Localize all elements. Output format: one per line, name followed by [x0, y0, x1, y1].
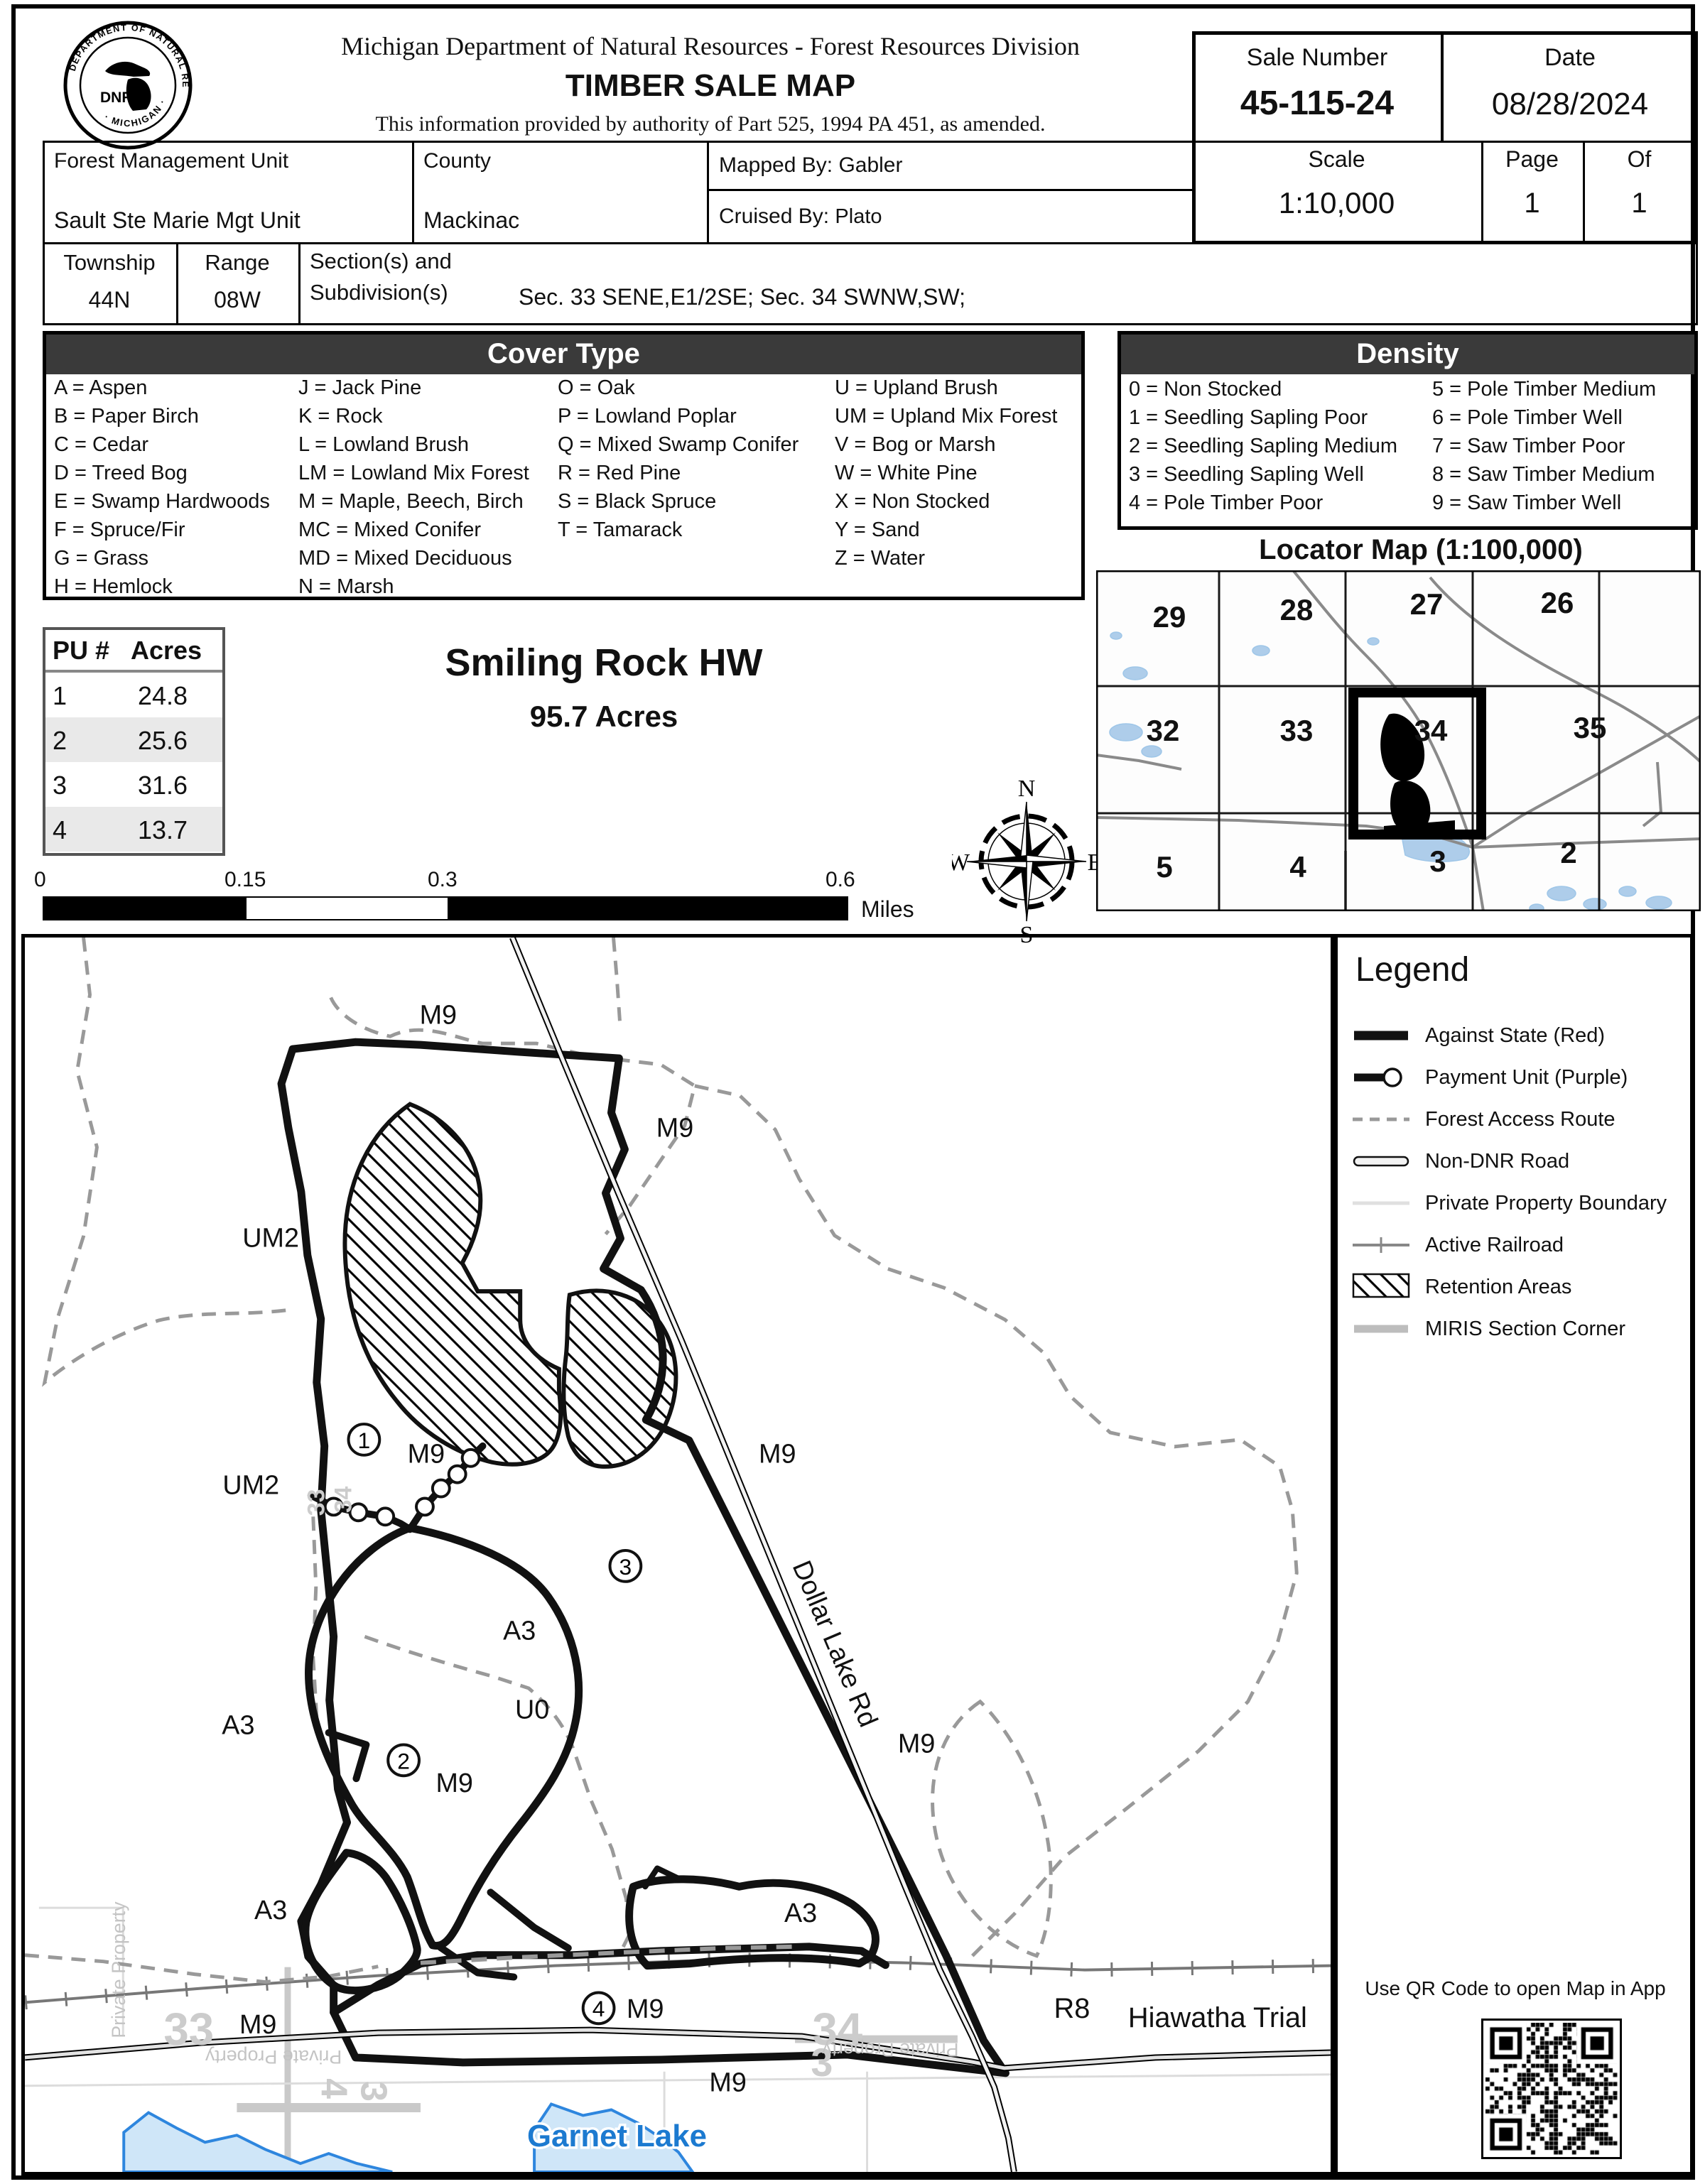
m9-label: M9: [656, 1113, 693, 1143]
page-title: TIMBER SALE MAP: [249, 68, 1172, 104]
density-item: 5 = Pole Timber Medium: [1432, 375, 1656, 403]
locator-sec-32: 32: [1147, 714, 1180, 747]
cover-type-col1: A = Aspen B = Paper Birch C = Cedar D = …: [54, 374, 270, 601]
pu-row: 3 31.6: [45, 762, 222, 807]
density-item: 8 = Saw Timber Medium: [1432, 460, 1656, 489]
mapped-by-value: Gabler: [838, 153, 902, 177]
private-property-bottom-1: Private Property: [205, 2046, 342, 2068]
date-value: 08/28/2024: [1442, 87, 1698, 122]
scalebar-tick-0: 0: [34, 868, 46, 892]
cover-item: N = Marsh: [298, 572, 529, 601]
locator-sec-28: 28: [1280, 593, 1314, 626]
mapped-by-label: Mapped By:: [719, 153, 833, 177]
cover-item: B = Paper Birch: [54, 402, 270, 430]
locator-sec-2: 2: [1560, 836, 1576, 869]
scalebar-tick-1: 0.15: [224, 868, 266, 892]
locator-sec-33: 33: [1280, 714, 1314, 747]
cover-item: H = Hemlock: [54, 572, 270, 601]
dollar-lake-road: [512, 938, 1014, 2172]
compass-rose: N E S W: [952, 776, 1101, 947]
page-value: 1: [1481, 188, 1583, 219]
cover-item: X = Non Stocked: [835, 487, 1057, 516]
pu-acres: 24.8: [138, 681, 188, 711]
pu-header-acres: Acres: [131, 636, 202, 665]
density-item: 4 = Pole Timber Poor: [1129, 489, 1397, 517]
m9-label: M9: [239, 2010, 276, 2040]
compass-cardinal-points: [967, 802, 1086, 921]
a3-label: A3: [222, 1711, 254, 1741]
legend-title: Legend: [1355, 950, 1469, 989]
fmu-label: Forest Management Unit: [54, 149, 288, 173]
private-property-bottom-2: Private Property: [822, 2039, 959, 2060]
unit-1-number: 1: [358, 1428, 371, 1453]
scale-bar-white-segment: [247, 898, 448, 919]
density-item: 6 = Pole Timber Well: [1432, 403, 1656, 432]
cover-item: A = Aspen: [54, 374, 270, 402]
scale-bar: [43, 896, 848, 920]
legend-label-retention: Retention Areas: [1425, 1276, 1571, 1299]
cover-item: M = Maple, Beech, Birch: [298, 487, 529, 516]
scalebar-unit: Miles: [861, 896, 914, 923]
pu-acres: 13.7: [138, 815, 188, 845]
cruised-by-line: Cruised By: Plato: [719, 205, 882, 229]
pu-number: 4: [53, 815, 67, 845]
pu-row: 2 25.6: [45, 717, 222, 762]
locator-sec-3: 3: [1429, 844, 1446, 878]
garnet-lake-label: Garnet Lake: [527, 2119, 707, 2153]
locator-map: 29 28 27 26 32 33 34 35 5 4 3 2: [1096, 570, 1701, 911]
cover-item: LM = Lowland Mix Forest: [298, 459, 529, 487]
pu-row: 4 13.7: [45, 807, 222, 852]
county-label: County: [423, 149, 491, 173]
county-value: Mackinac: [423, 207, 519, 234]
range-value: 08W: [176, 287, 298, 313]
um2-label: UM2: [222, 1470, 279, 1500]
legend-label-private-property: Private Property Boundary: [1425, 1192, 1667, 1215]
m9-label: M9: [709, 2068, 746, 2098]
density-col1: 0 = Non Stocked 1 = Seedling Sapling Poo…: [1129, 375, 1397, 517]
legend-label-non-dnr-road: Non-DNR Road: [1425, 1150, 1569, 1173]
pu-number: 3: [53, 771, 67, 800]
cover-item: MC = Mixed Conifer: [298, 516, 529, 544]
um2-label: UM2: [242, 1223, 299, 1253]
unit-2-number: 2: [397, 1748, 410, 1773]
cover-item: V = Bog or Marsh: [835, 430, 1057, 459]
cover-item: W = White Pine: [835, 459, 1057, 487]
cover-item: L = Lowland Brush: [298, 430, 529, 459]
sections-value: Sec. 33 SENE,E1/2SE; Sec. 34 SWNW,SW;: [519, 284, 965, 310]
of-value: 1: [1583, 188, 1696, 219]
cover-item: K = Rock: [298, 402, 529, 430]
forest-access-routes: [25, 938, 1297, 1982]
sale-name: Smiling Rock HW: [355, 641, 852, 685]
a3-label: A3: [784, 1898, 817, 1928]
private-property-left: Private Property: [108, 1901, 129, 2038]
locator-sec-34: 34: [1414, 714, 1448, 747]
page-label: Page: [1481, 146, 1583, 173]
locator-sec-4: 4: [1289, 850, 1306, 884]
legend-swatch-payment-unit: [1351, 1063, 1411, 1092]
authority-line: This information provided by authority o…: [249, 112, 1172, 136]
sections-label-line1: Section(s) and: [310, 249, 452, 274]
cover-item: J = Jack Pine: [298, 374, 529, 402]
sections-cell: [298, 242, 1698, 325]
sections-label-line2: Subdivision(s): [310, 280, 448, 305]
cover-type-col3: O = Oak P = Lowland Poplar Q = Mixed Swa…: [558, 374, 799, 544]
scale-label: Scale: [1192, 146, 1481, 173]
township-label: Township: [43, 250, 176, 276]
of-label: Of: [1583, 146, 1696, 173]
pu-acres: 25.6: [138, 726, 188, 756]
township-value: 44N: [43, 287, 176, 313]
m9-label: M9: [408, 1440, 445, 1469]
hiawatha-trail-label: Hiawatha Trial: [1128, 2002, 1307, 2033]
locator-sec-5: 5: [1156, 850, 1172, 884]
section-33-small-rotated: 33: [303, 1489, 330, 1516]
m9-label: M9: [435, 1769, 472, 1798]
legend-swatch-miris: [1351, 1315, 1411, 1343]
fmu-value: Sault Ste Marie Mgt Unit: [54, 207, 301, 234]
cover-item: O = Oak: [558, 374, 799, 402]
cover-type-col2: J = Jack Pine K = Rock L = Lowland Brush…: [298, 374, 529, 601]
scale-value: 1:10,000: [1192, 186, 1481, 220]
legend-label-miris: MIRIS Section Corner: [1425, 1318, 1625, 1341]
pu-table: PU # Acres 1 24.8 2 25.6 3 31.6 4 13.7: [43, 627, 225, 856]
legend-swatch-non-dnr-road: [1351, 1147, 1411, 1175]
a3-label: A3: [254, 1896, 287, 1925]
cruised-by-value: Plato: [835, 205, 882, 228]
scalebar-tick-2: 0.3: [428, 868, 458, 892]
cruised-by-label: Cruised By:: [719, 205, 829, 228]
unit-3-number: 3: [619, 1554, 632, 1580]
density-item: 9 = Saw Timber Well: [1432, 489, 1656, 517]
cover-item: Z = Water: [835, 544, 1057, 572]
section-3-rotated: 3: [353, 2081, 394, 2102]
cover-item: C = Cedar: [54, 430, 270, 459]
legend-swatch-railroad: [1351, 1231, 1411, 1259]
agency-line: Michigan Department of Natural Resources…: [249, 31, 1172, 61]
locator-sec-26: 26: [1541, 586, 1574, 619]
range-label: Range: [176, 250, 298, 276]
locator-sec-35: 35: [1574, 711, 1607, 744]
cover-item: D = Treed Bog: [54, 459, 270, 487]
cover-item: F = Spruce/Fir: [54, 516, 270, 544]
scalebar-tick-3: 0.6: [826, 868, 855, 892]
cover-item: E = Swamp Hardwoods: [54, 487, 270, 516]
section-4-rotated: 4: [314, 2078, 355, 2099]
density-item: 2 = Seedling Sapling Medium: [1129, 432, 1397, 460]
cover-item: MD = Mixed Deciduous: [298, 544, 529, 572]
cover-item: Q = Mixed Swamp Conifer: [558, 430, 799, 459]
cover-item: T = Tamarack: [558, 516, 799, 544]
legend-swatch-against-state: [1351, 1021, 1411, 1050]
cover-item: R = Red Pine: [558, 459, 799, 487]
cover-item: P = Lowland Poplar: [558, 402, 799, 430]
density-col2: 5 = Pole Timber Medium 6 = Pole Timber W…: [1432, 375, 1656, 517]
legend-label-payment-unit: Payment Unit (Purple): [1425, 1066, 1628, 1090]
locator-sec-29: 29: [1153, 600, 1186, 634]
sale-number-value: 45-115-24: [1192, 84, 1442, 123]
legend-label-against-state: Against State (Red): [1425, 1024, 1605, 1048]
m9-label: M9: [627, 1994, 664, 2024]
cover-item: UM = Upland Mix Forest: [835, 402, 1057, 430]
m9-label: M9: [898, 1729, 935, 1759]
qr-code: [1481, 2019, 1622, 2159]
cover-item: U = Upland Brush: [835, 374, 1057, 402]
pu-acres: 31.6: [138, 771, 188, 800]
cover-item: G = Grass: [54, 544, 270, 572]
compass-n: N: [1018, 776, 1036, 802]
a3-label: A3: [503, 1616, 536, 1646]
legend-label-forest-access: Forest Access Route: [1425, 1108, 1615, 1131]
density-item: 0 = Non Stocked: [1129, 375, 1397, 403]
pu-row: 1 24.8: [45, 673, 222, 717]
section-34-small-rotated: 34: [330, 1486, 357, 1513]
date-label: Date: [1442, 44, 1698, 72]
legend-swatch-private-property: [1351, 1189, 1411, 1217]
cover-item: Y = Sand: [835, 516, 1057, 544]
sale-number-label: Sale Number: [1192, 44, 1442, 72]
locator-title: Locator Map (1:100,000): [1165, 534, 1677, 566]
cover-type-title: Cover Type: [46, 335, 1081, 374]
density-item: 1 = Seedling Sapling Poor: [1129, 403, 1397, 432]
sale-acres: 95.7 Acres: [355, 700, 852, 734]
cover-type-col4: U = Upland Brush UM = Upland Mix Forest …: [835, 374, 1057, 572]
legend-label-railroad: Active Railroad: [1425, 1234, 1564, 1257]
pu-header-number: PU #: [53, 636, 109, 665]
cover-item: S = Black Spruce: [558, 487, 799, 516]
unit-4-number: 4: [592, 1996, 605, 2021]
m9-label: M9: [759, 1440, 796, 1469]
density-title: Density: [1121, 335, 1694, 374]
logo-dnr-text: DNR: [100, 89, 133, 106]
dnr-logo: DEPARTMENT OF NATURAL RESOURCES · MICHIG…: [63, 20, 194, 151]
dollar-lake-rd-label: Dollar Lake Rd: [786, 1556, 883, 1731]
sale-map: 33 34 3 4 3 33 34 Private Property Priva…: [21, 934, 1334, 2175]
density-item: 3 = Seedling Sapling Well: [1129, 460, 1397, 489]
locator-sec-27: 27: [1410, 587, 1444, 621]
r8-label: R8: [1054, 1993, 1090, 2024]
m9-label: M9: [420, 1000, 457, 1030]
legend-swatch-retention: [1351, 1270, 1411, 1301]
qr-caption: Use QR Code to open Map in App: [1355, 1977, 1675, 2000]
timber-sale-map-page: DEPARTMENT OF NATURAL RESOURCES · MICHIG…: [0, 0, 1705, 2184]
mapped-by-line: Mapped By: Gabler: [719, 153, 902, 178]
pu-number: 2: [53, 726, 67, 756]
density-item: 7 = Saw Timber Poor: [1432, 432, 1656, 460]
compass-w: W: [952, 849, 970, 876]
pu-number: 1: [53, 681, 67, 711]
legend-swatch-forest-access: [1351, 1105, 1411, 1134]
u0-label: U0: [515, 1695, 549, 1725]
